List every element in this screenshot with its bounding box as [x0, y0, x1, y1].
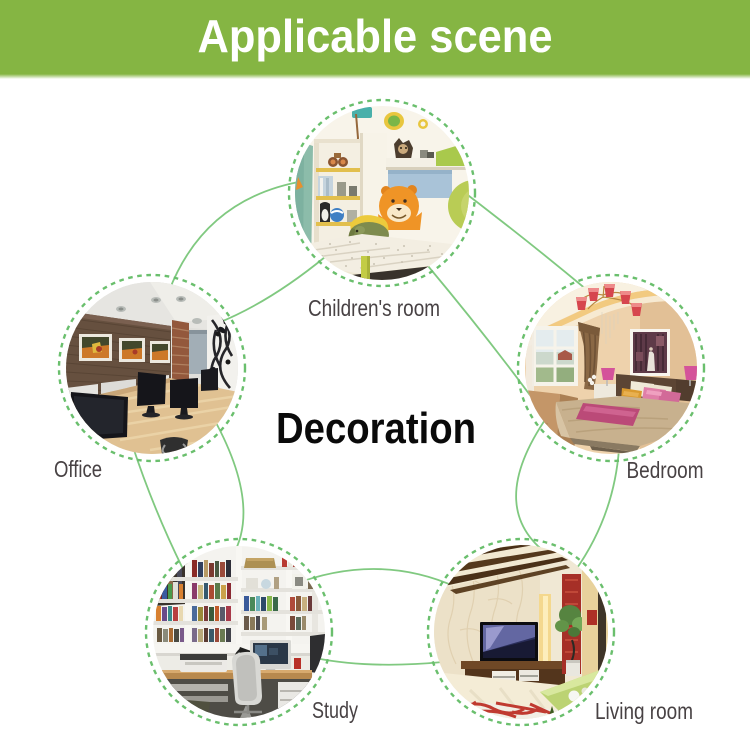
svg-text:Bedroom: Bedroom — [627, 457, 704, 483]
svg-text:Decoration: Decoration — [276, 404, 476, 453]
svg-text:Study: Study — [312, 697, 358, 723]
svg-text:Office: Office — [54, 456, 102, 482]
svg-text:Living room: Living room — [595, 698, 693, 724]
svg-text:Children's room: Children's room — [308, 295, 440, 321]
svg-text:Applicable scene: Applicable scene — [198, 10, 553, 62]
